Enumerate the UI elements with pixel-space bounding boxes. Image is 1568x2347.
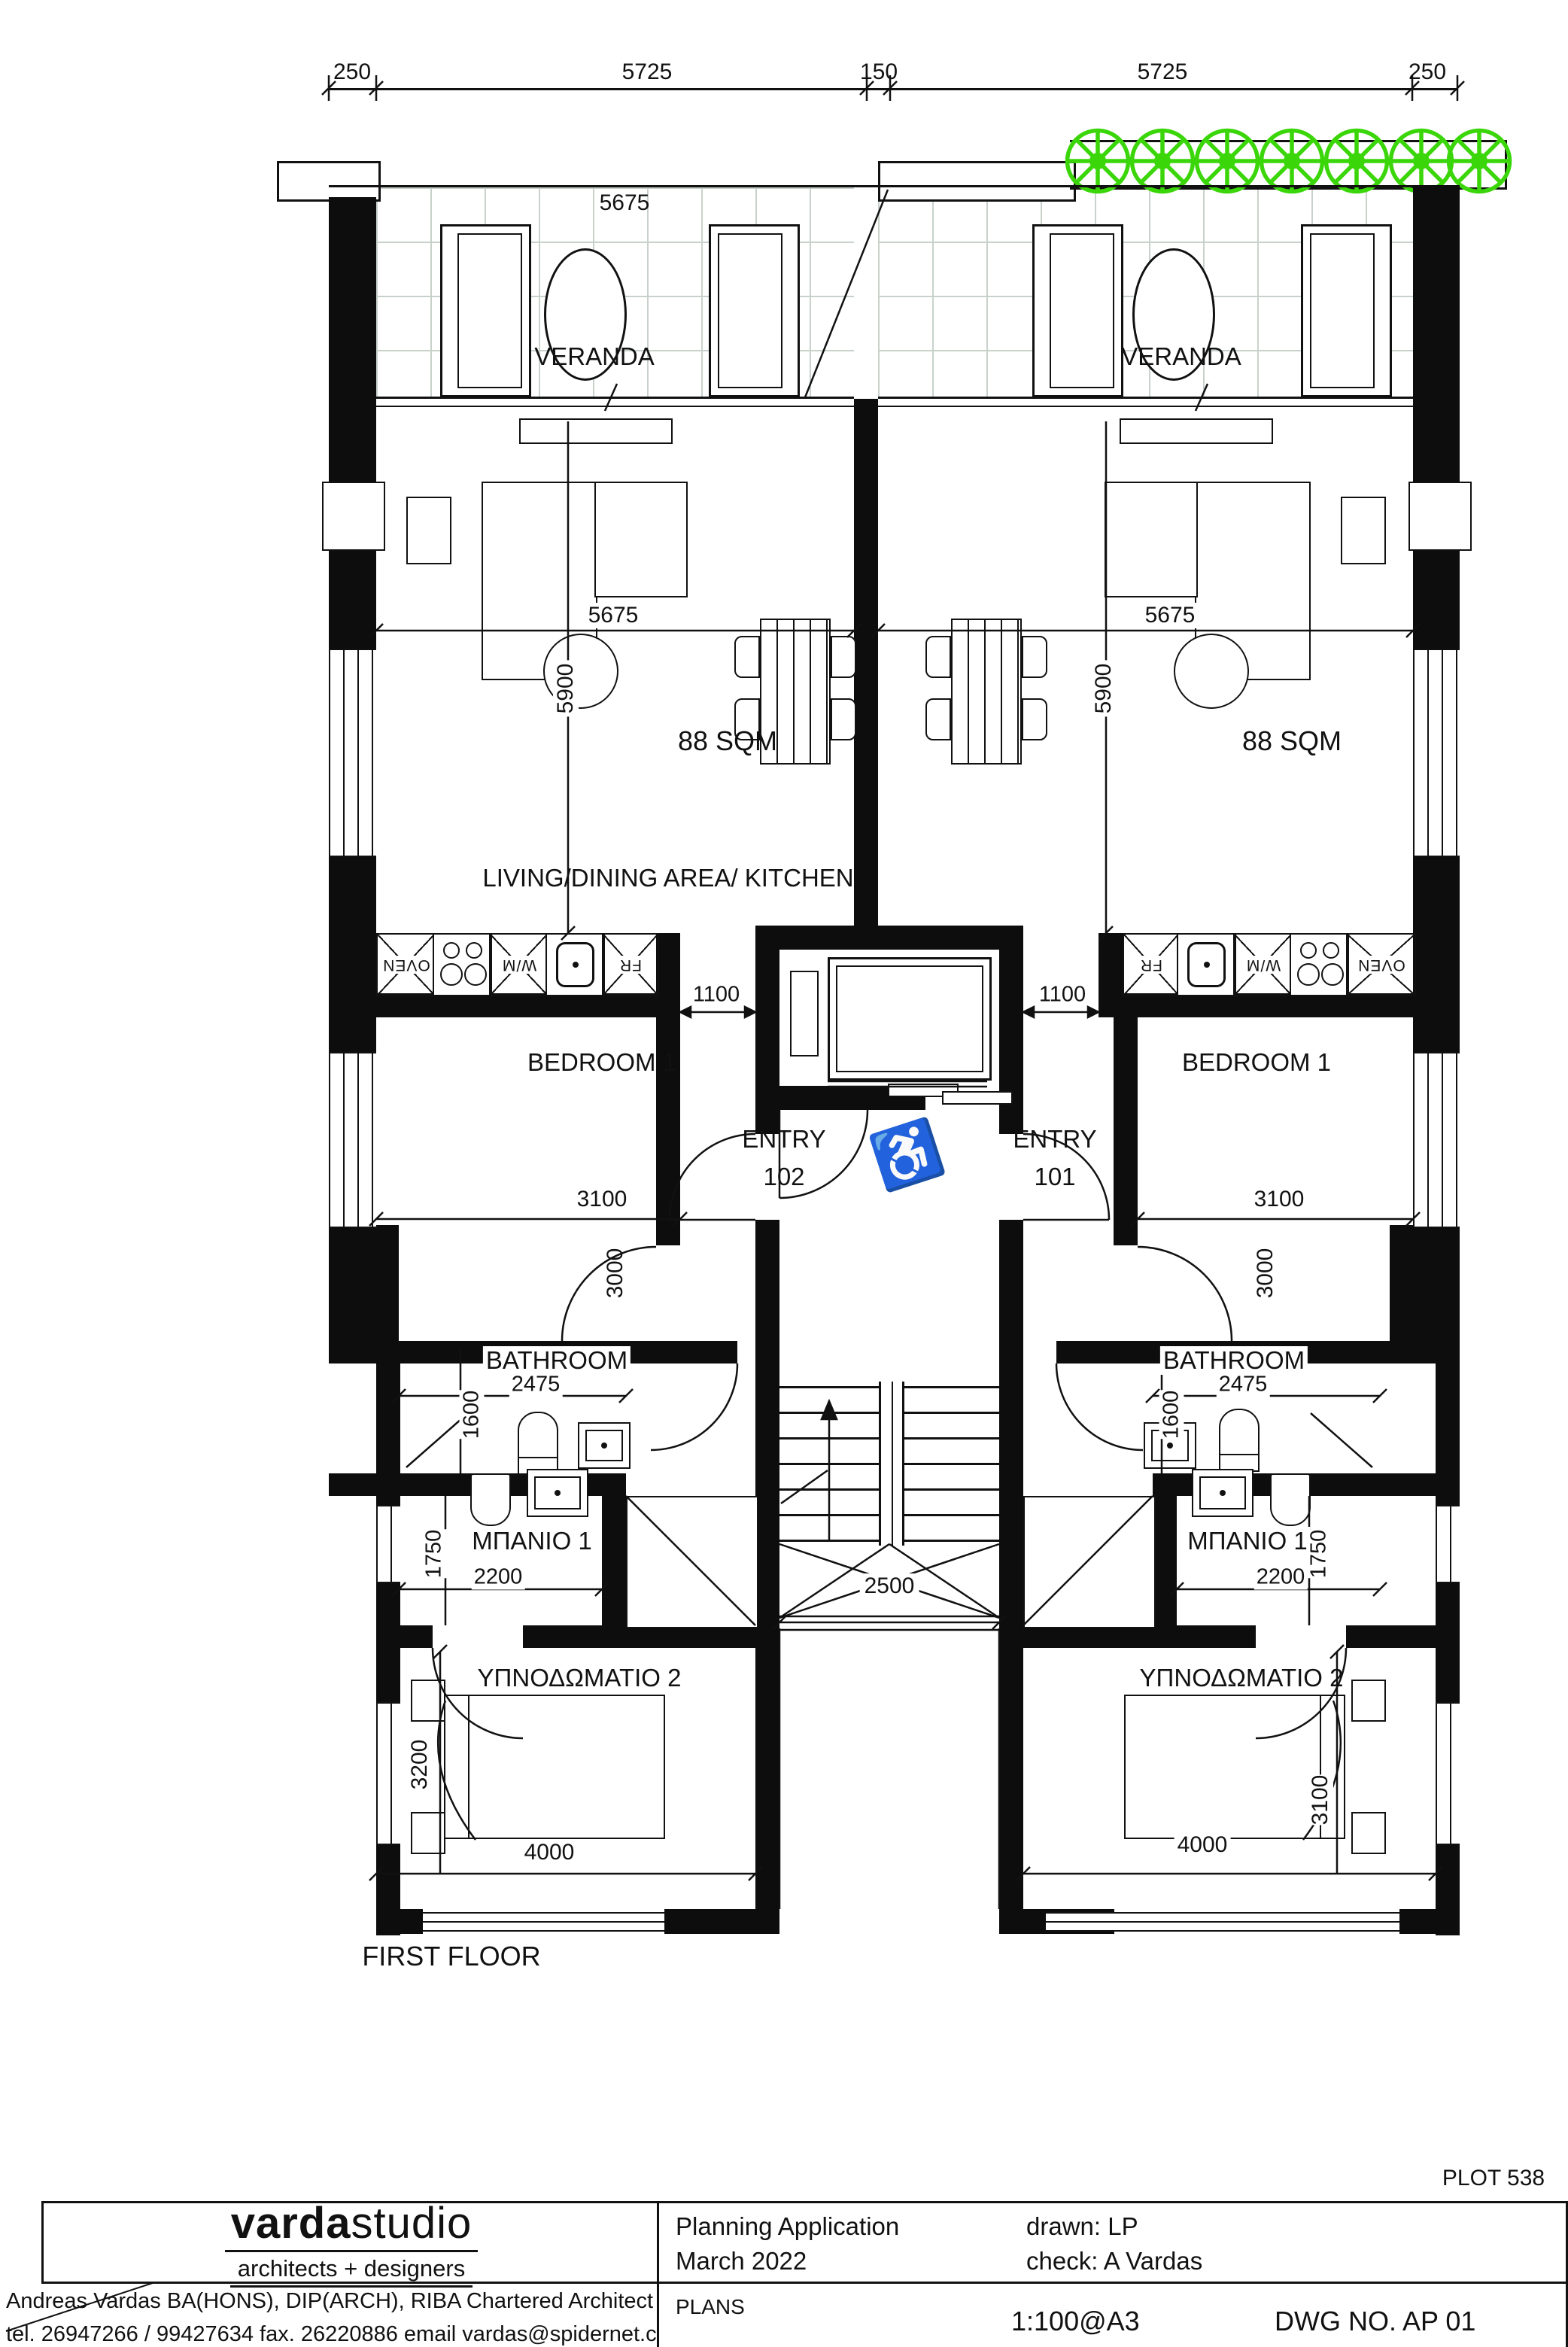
stair-center-rail — [879, 1382, 904, 1546]
veranda-sofa — [1032, 224, 1123, 397]
dim-bedroom1-width: 3100 — [577, 1187, 628, 1212]
sheet-name: PLANS — [676, 2295, 745, 2319]
window-right-bedroom2 — [1436, 1702, 1460, 1845]
room-label-bathroom: BATHROOM — [483, 1346, 631, 1375]
shaft-edge — [779, 1628, 999, 1909]
sofa-cushions — [457, 233, 522, 388]
wall-left-corner — [329, 1225, 399, 1347]
wall-bottom — [1399, 1909, 1460, 1934]
window-left-living — [329, 649, 376, 857]
wall-left — [329, 854, 376, 1052]
dim-wc-height: 1750 — [422, 1530, 447, 1579]
dim-top: 5725 — [1138, 59, 1188, 85]
coffee-table — [1174, 634, 1249, 709]
canopy-center — [878, 161, 1076, 202]
window-right-wc — [1436, 1505, 1460, 1583]
dining-chair — [925, 698, 951, 740]
wall-kitchen-left-end — [656, 933, 680, 1017]
room-label-living: LIVING/DINING AREA/ KITCHEN — [482, 864, 853, 892]
wall-wc-left — [602, 1496, 626, 1625]
side-table — [1341, 497, 1386, 564]
window-bottom-right — [1046, 1912, 1399, 1932]
room-label-bathroom: BATHROOM — [1160, 1346, 1308, 1375]
wall-left — [329, 548, 376, 649]
hall-dim — [1023, 1007, 1099, 1017]
wall-bottom — [376, 1909, 423, 1934]
bedroom1-dim — [1131, 1212, 1420, 1226]
dim-stair-width: 2500 — [860, 1573, 919, 1599]
dining-chair — [925, 636, 951, 678]
dim-bedroom2-height: 3100 — [1308, 1775, 1333, 1826]
room-label-veranda: VERANDA — [534, 342, 655, 371]
room-label-wc: ΜΠΑΝΙΟ 1 — [469, 1527, 594, 1555]
toilet — [1219, 1409, 1260, 1457]
wall-kitchen-left — [376, 993, 680, 1017]
bathroom-door-left — [651, 1364, 737, 1450]
fridge-label: FR — [617, 956, 644, 974]
washbasin — [1192, 1469, 1253, 1517]
wall-bedroom1-right — [1114, 1017, 1138, 1245]
application-type: Planning Application — [676, 2212, 899, 2241]
studio-subtitle: architects + designers — [230, 2255, 473, 2288]
fridge-box: FR — [602, 933, 659, 996]
hob-box — [433, 933, 492, 996]
dim-bedroom2-width: 4000 — [521, 1840, 578, 1865]
entry-label-right: ENTRY — [1013, 1125, 1096, 1154]
contact-info: tel. 26947266 / 99427634 fax. 26220886 e… — [6, 2322, 715, 2347]
window-left-bedroom2 — [376, 1702, 400, 1845]
oven-label: OVEN — [380, 956, 433, 974]
bedroom1-door-right — [1138, 1247, 1232, 1341]
studio-logo-bold: varda — [231, 2199, 351, 2248]
dim-bathroom-width: 2475 — [509, 1373, 563, 1397]
wall-right — [1413, 185, 1460, 399]
closet — [626, 1496, 758, 1628]
wall-middle-party — [854, 399, 878, 950]
bathroom-door-right — [1056, 1364, 1143, 1450]
closet — [1023, 1496, 1156, 1628]
veranda-sofa — [440, 224, 531, 397]
washbasin — [578, 1422, 631, 1469]
dim-veranda-width: 5675 — [600, 190, 650, 216]
window-small-right — [1408, 482, 1472, 551]
window-left-wc — [376, 1505, 400, 1583]
dining-chair — [1022, 636, 1047, 678]
dim-bedroom2-height: 3200 — [407, 1740, 433, 1790]
drawn-by: drawn: LP — [1026, 2212, 1138, 2241]
bed — [444, 1695, 665, 1839]
wall-right — [1413, 854, 1460, 1052]
wall-kitchen-right — [1099, 993, 1413, 1017]
lift-counterweight — [790, 971, 819, 1056]
sink-box — [545, 933, 605, 996]
lift-car — [828, 957, 992, 1081]
dim-bathroom-width: 2475 — [1217, 1373, 1270, 1397]
room-label-wc: ΜΠΑΝΙΟ 1 — [1185, 1527, 1310, 1555]
tv-bench — [519, 418, 673, 444]
wall-shaft-left — [755, 950, 779, 1134]
wall-bedroom2-right-top — [1023, 1625, 1256, 1648]
window-left-bedroom1 — [329, 1052, 376, 1228]
dining-chair — [831, 698, 856, 740]
wall-right-corner — [1390, 1225, 1460, 1347]
fridge-box: FR — [1123, 933, 1180, 996]
wall-shaft-left — [755, 1220, 779, 1932]
dim-wc-width: 2200 — [1254, 1565, 1308, 1590]
dim-hall: 1100 — [1039, 983, 1086, 1008]
sofa-cushions — [1310, 233, 1375, 388]
nightstand — [1351, 1812, 1386, 1854]
wall-bedroom2-left-top — [376, 1625, 433, 1648]
dim-wc-width: 2200 — [472, 1565, 525, 1590]
bedroom2-dim — [369, 1867, 762, 1880]
entry-label-left: ENTRY — [742, 1125, 825, 1154]
bedroom1-dim — [369, 1212, 687, 1226]
dim-top: 250 — [333, 59, 371, 85]
dim-living-height: 5900 — [1091, 661, 1117, 717]
window-bottom-left — [423, 1912, 664, 1932]
washing-machine-box: W/M — [1233, 933, 1293, 996]
oven-label: OVEN — [1355, 956, 1408, 974]
area-label: 88 SQM — [1242, 725, 1342, 757]
oven-box: OVEN — [376, 933, 436, 996]
dim-living-width: 5675 — [585, 603, 642, 628]
wall-shaft-right — [999, 950, 1023, 1134]
dining-chair — [1022, 698, 1047, 740]
nightstand — [1351, 1680, 1386, 1722]
oven-box: OVEN — [1346, 933, 1416, 996]
veranda-door-line — [376, 406, 854, 407]
building-top-edge — [329, 185, 1460, 187]
drawing-number: DWG NO. AP 01 — [1275, 2306, 1475, 2337]
toilet — [518, 1412, 558, 1460]
veranda-door-line — [878, 406, 1413, 407]
entry-number-right: 101 — [1034, 1163, 1075, 1191]
wall-left — [329, 197, 376, 482]
nightstand — [411, 1812, 445, 1854]
area-label: 88 SQM — [678, 725, 777, 757]
dining-table — [951, 619, 1022, 765]
drawing-scale: 1:100@A3 — [1011, 2306, 1140, 2337]
dim-top: 150 — [860, 59, 898, 85]
dining-chair — [734, 636, 760, 678]
canopy-left — [277, 161, 381, 202]
dim-living-height: 5900 — [553, 661, 579, 717]
top-dimension-line — [329, 88, 1457, 90]
room-label-bedroom2: ΥΠΝΟΔΩΜΑΤΙΟ 2 — [1140, 1664, 1344, 1692]
sofa-l-chaise — [1105, 482, 1198, 597]
washing-machine-label: W/M — [1243, 956, 1282, 974]
title-block: Planning Application March 2022 drawn: L… — [657, 2201, 1568, 2347]
wall-shaft-right — [999, 1220, 1023, 1932]
sofa-cushions — [718, 233, 782, 388]
architect-credentials: Andreas Vardas BA(HONS), DIP(ARCH), RIBA… — [6, 2289, 653, 2314]
plot-number: PLOT 538 — [1442, 2166, 1545, 2191]
dim-bedroom1-height: 3000 — [1253, 1248, 1278, 1299]
dim-living-width: 5675 — [1142, 603, 1199, 628]
floor-plan-canvas: OVEN W/M FR FR W/M OVEN ♿ — [0, 0, 1568, 2347]
hob-box — [1290, 933, 1349, 996]
application-date: March 2022 — [676, 2247, 807, 2276]
washbasin — [527, 1469, 588, 1517]
bedroom2-dim — [1016, 1867, 1442, 1880]
washing-machine-box: W/M — [489, 933, 548, 996]
lift-door-panel — [942, 1091, 1013, 1105]
room-label-bedroom1: BEDROOM 1 — [527, 1048, 676, 1077]
room-label-bedroom2: ΥΠΝΟΔΩΜΑΤΙΟ 2 — [478, 1664, 682, 1692]
sofa-cushions — [1050, 233, 1114, 388]
fridge-label: FR — [1138, 956, 1165, 974]
sofa-l-chaise — [594, 482, 688, 597]
wall-kitchen-right-end — [1099, 933, 1123, 1017]
veranda-sofa — [709, 224, 800, 397]
wheelchair-accessible-icon: ♿ — [865, 1114, 951, 1197]
wall-right — [1413, 399, 1460, 482]
dim-wc-height: 1750 — [1307, 1530, 1332, 1579]
wall-wc-right — [1153, 1496, 1177, 1625]
tv-bench — [1120, 418, 1273, 444]
stair-dim — [773, 1616, 1006, 1630]
checked-by: check: A Vardas — [1026, 2247, 1202, 2276]
window-right-living — [1413, 649, 1460, 857]
dim-bedroom1-width: 3100 — [1254, 1187, 1305, 1212]
wall-bedroom2-right-top — [1346, 1625, 1460, 1648]
sink-box — [1177, 933, 1236, 996]
wall-right — [1413, 548, 1460, 649]
dim-bedroom2-width: 4000 — [1174, 1832, 1231, 1858]
nightstand — [411, 1680, 445, 1722]
wall-lift-top — [755, 926, 1023, 950]
dim-bedroom1-height: 3000 — [603, 1248, 628, 1299]
veranda-sofa — [1301, 224, 1392, 397]
table-planks — [953, 620, 1020, 763]
hall-dim — [680, 1007, 755, 1017]
toilet — [470, 1473, 511, 1526]
studio-logo-light: studio — [351, 2199, 473, 2248]
wall-bottom — [664, 1909, 779, 1934]
room-label-veranda: VERANDA — [1121, 342, 1241, 371]
dim-bathroom-height: 1600 — [1159, 1391, 1184, 1440]
studio-logo: vardastudio — [225, 2198, 479, 2252]
dim-hall: 1100 — [693, 983, 740, 1008]
dining-chair — [831, 636, 856, 678]
logo-box: vardastudio architects + designers — [41, 2201, 661, 2284]
entry-number-left: 102 — [763, 1163, 804, 1191]
title-block-divider — [659, 2282, 1566, 2284]
dim-top: 5725 — [622, 59, 673, 85]
window-right-bedroom1 — [1413, 1052, 1460, 1228]
washing-machine-label: W/M — [499, 956, 538, 974]
wall-bedroom2-left-top — [523, 1625, 755, 1648]
room-label-bedroom1: BEDROOM 1 — [1182, 1048, 1331, 1077]
floor-title: FIRST FLOOR — [362, 1941, 540, 1972]
window-small-left — [322, 482, 385, 551]
dim-top: 250 — [1408, 59, 1446, 85]
dim-bathroom-height: 1600 — [460, 1391, 485, 1440]
side-table — [406, 497, 451, 564]
toilet — [1270, 1473, 1311, 1526]
